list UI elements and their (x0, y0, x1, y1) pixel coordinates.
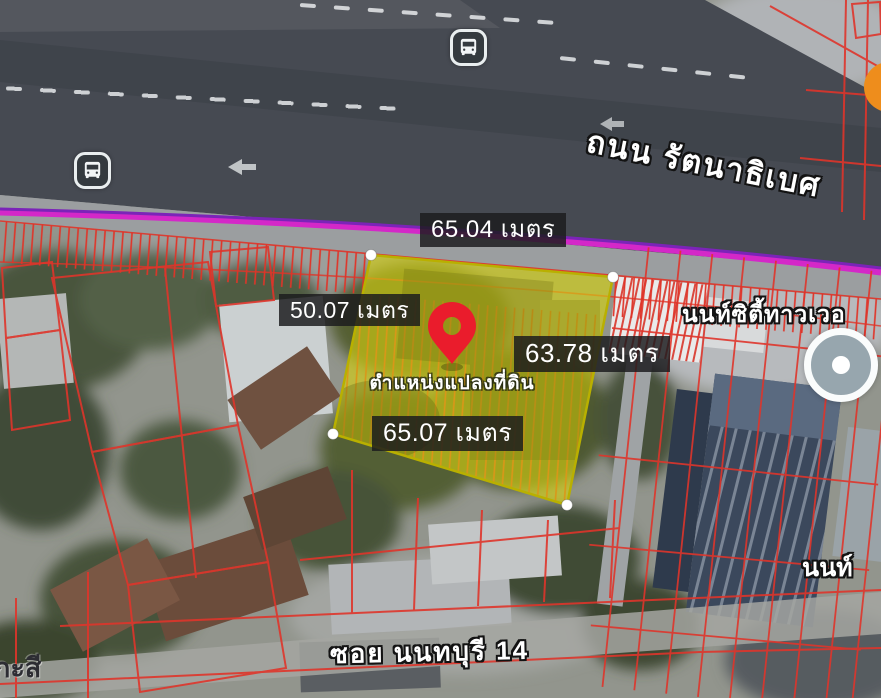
satellite-map-view[interactable]: 65.04 เมตร 50.07 เมตร 63.78 เมตร 65.07 เ… (0, 0, 881, 698)
plot-vertex-dot[interactable] (366, 250, 377, 261)
building-name-label: นนท์ซิตี้ทาวเวอ (682, 297, 846, 333)
map-canvas (0, 0, 881, 698)
place-name-partial-left: กะสี (0, 646, 41, 689)
bus-glyph-icon (81, 159, 104, 182)
bus-station-icon[interactable] (74, 152, 111, 189)
pin-caption: ตำแหน่งแปลงที่ดิน (342, 368, 562, 398)
poi-center-dot (832, 356, 850, 374)
bus-glyph-icon (457, 36, 480, 59)
poi-circle-icon[interactable] (804, 328, 878, 402)
measurement-label-left: 50.07 เมตร (279, 294, 420, 326)
plot-vertex-dot[interactable] (328, 429, 339, 440)
measurement-label-right: 63.78 เมตร (514, 336, 670, 372)
plot-vertex-dot[interactable] (608, 272, 619, 283)
tower-building (650, 369, 842, 627)
place-name-partial-right: นนท์ (802, 548, 853, 588)
plot-vertex-dot[interactable] (562, 500, 573, 511)
measurement-label-top: 65.04 เมตร (420, 213, 566, 247)
measurement-label-bottom: 65.07 เมตร (372, 416, 523, 451)
soi-name-label: ซอย นนทบุรี 14 (330, 630, 530, 675)
bus-station-icon[interactable] (450, 29, 487, 66)
